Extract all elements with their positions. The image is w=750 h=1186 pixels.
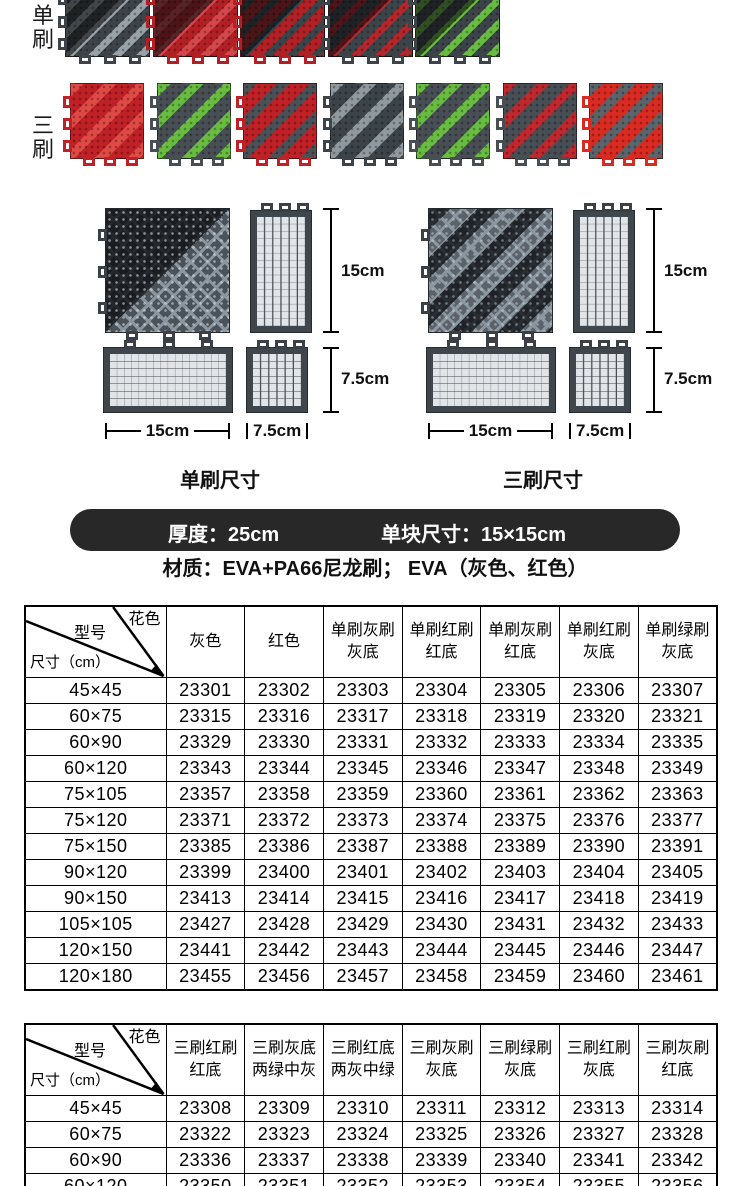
- product-code-cell: 23358: [245, 782, 324, 808]
- table-row: 60×7523322233232332423325233262332723328: [25, 1122, 717, 1148]
- connector-loop: [429, 55, 441, 64]
- connector-loop: [233, 38, 242, 50]
- connector-loop: [199, 331, 211, 340]
- product-code-cell: 23385: [166, 834, 245, 860]
- product-code-cell: 23429: [323, 912, 402, 938]
- column-header: 单刷灰刷灰底: [323, 606, 402, 678]
- product-tile-单刷绿刷灰底: [415, 0, 500, 57]
- product-code-cell: 23345: [323, 756, 402, 782]
- connector-loop: [602, 203, 614, 212]
- product-code-cell: 23350: [166, 1174, 245, 1186]
- connector-loop: [537, 157, 549, 166]
- product-code-cell: 23324: [323, 1122, 402, 1148]
- product-tile-单刷灰刷红底: [240, 0, 325, 57]
- connector-loop: [63, 140, 72, 152]
- table-row: 60×7523315233162331723318233192332023321: [25, 704, 717, 730]
- product-tile-三刷灰刷红底: [589, 83, 663, 159]
- edge-strip-horizontal: [426, 347, 556, 413]
- corner-label-model: 型号: [74, 1041, 106, 1063]
- product-code-cell: 23445: [481, 938, 560, 964]
- connector-loop: [342, 55, 354, 64]
- connector-loop: [342, 157, 354, 166]
- connector-loop: [472, 157, 484, 166]
- connector-loop: [256, 157, 268, 166]
- product-code-cell: 23311: [402, 1096, 481, 1122]
- product-tile-三刷红刷灰底: [503, 83, 577, 159]
- connector-loop: [623, 157, 635, 166]
- product-code-cell: 23346: [402, 756, 481, 782]
- connector-loop: [236, 140, 245, 152]
- product-tile-三刷灰底两绿中灰: [157, 83, 231, 159]
- product-code-cell: 23419: [638, 886, 717, 912]
- column-header: 三刷灰刷灰底: [402, 1024, 481, 1096]
- product-code-cell: 23418: [560, 886, 639, 912]
- table-row: 90×1202339923400234012340223403234042340…: [25, 860, 717, 886]
- table-row: 105×105234272342823429234302343123432234…: [25, 912, 717, 938]
- connector-loop: [104, 55, 116, 64]
- size-cell: 105×105: [25, 912, 166, 938]
- product-code-cell: 23347: [481, 756, 560, 782]
- product-code-cell: 23336: [166, 1148, 245, 1174]
- connector-loop: [146, 38, 155, 50]
- table-row: 75×1052335723358233592336023361233622336…: [25, 782, 717, 808]
- product-code-cell: 23333: [481, 730, 560, 756]
- triple-brush-size-caption: 三刷尺寸: [428, 464, 658, 493]
- edge-strip-vertical: [573, 210, 635, 333]
- product-tile-单刷灰刷灰底: [65, 0, 150, 57]
- product-code-cell: 23417: [481, 886, 560, 912]
- product-code-cell: 23414: [245, 886, 324, 912]
- product-code-cell: 23320: [560, 704, 639, 730]
- product-code-cell: 23405: [638, 860, 717, 886]
- spec-banner: 厚度：25cm 单块尺寸：15×15cm: [70, 509, 680, 551]
- connector-loop: [486, 331, 498, 340]
- connector-loop: [146, 0, 155, 5]
- connector-loop: [254, 55, 266, 64]
- connector-loop: [169, 157, 181, 166]
- connector-loop: [364, 157, 376, 166]
- connector-loop: [275, 340, 287, 349]
- connector-loop: [104, 157, 116, 166]
- column-header: 三刷灰底两绿中灰: [245, 1024, 324, 1096]
- product-code-cell: 23315: [166, 704, 245, 730]
- height-dimension-line: [323, 208, 339, 333]
- connector-loop: [429, 157, 441, 166]
- connector-loop: [236, 118, 245, 130]
- size-cell: 75×120: [25, 808, 166, 834]
- product-code-cell: 23318: [402, 704, 481, 730]
- single-brush-row-label: 单刷: [30, 4, 56, 52]
- product-code-cell: 23317: [323, 704, 402, 730]
- table-row: 75×1502338523386233872338823389233902339…: [25, 834, 717, 860]
- product-code-cell: 23357: [166, 782, 245, 808]
- width-dimension-line: 15cm: [105, 423, 230, 439]
- product-code-cell: 23306: [560, 678, 639, 704]
- triple-brush-row-label: 三刷: [30, 114, 56, 162]
- product-code-cell: 23305: [481, 678, 560, 704]
- connector-loop: [83, 157, 95, 166]
- connector-loop: [98, 302, 107, 314]
- table-row: 120×150234412344223443234442344523446234…: [25, 938, 717, 964]
- product-code-cell: 23402: [402, 860, 481, 886]
- unit-size-spec: 单块尺寸：15×15cm: [381, 518, 566, 547]
- product-code-cell: 23399: [166, 860, 245, 886]
- product-code-cell: 23372: [245, 808, 324, 834]
- product-code-cell: 23343: [166, 756, 245, 782]
- product-code-cell: 23459: [481, 964, 560, 991]
- product-tile-单刷红刷红底: [153, 0, 238, 57]
- product-code-cell: 23401: [323, 860, 402, 886]
- connector-loop: [201, 340, 213, 349]
- connector-loop: [582, 118, 591, 130]
- product-code-cell: 23325: [402, 1122, 481, 1148]
- connector-loop: [421, 302, 430, 314]
- connector-loop: [524, 340, 536, 349]
- connector-loop: [257, 340, 269, 349]
- connector-loop: [558, 157, 570, 166]
- product-code-cell: 23361: [481, 782, 560, 808]
- connector-loop: [321, 38, 330, 50]
- product-code-cell: 23373: [323, 808, 402, 834]
- connector-loop: [421, 266, 430, 278]
- connector-loop: [150, 96, 159, 108]
- table-row: 120×180234552345623457234582345923460234…: [25, 964, 717, 991]
- connector-loop: [454, 55, 466, 64]
- connector-loop: [191, 157, 203, 166]
- table-corner-cell: 花色 型号 尺寸（cm）: [25, 1024, 166, 1096]
- column-header: 红色: [245, 606, 324, 678]
- product-code-cell: 23330: [245, 730, 324, 756]
- size-cell: 60×75: [25, 1122, 166, 1148]
- connector-loop: [98, 266, 107, 278]
- product-spec-sheet: 单刷 三刷 15cm 7.5cm 15cm 7.5cm 单刷尺寸 15cm 7.…: [0, 0, 750, 1186]
- product-code-cell: 23328: [638, 1122, 717, 1148]
- connector-loop: [304, 55, 316, 64]
- size-cell: 60×75: [25, 704, 166, 730]
- product-code-cell: 23386: [245, 834, 324, 860]
- column-header: 单刷绿刷灰底: [638, 606, 717, 678]
- connector-loop: [79, 55, 91, 64]
- connector-loop: [279, 203, 291, 212]
- connector-loop: [323, 96, 332, 108]
- size-cell: 45×45: [25, 678, 166, 704]
- product-code-cell: 23415: [323, 886, 402, 912]
- product-code-cell: 23321: [638, 704, 717, 730]
- connector-loop: [496, 118, 505, 130]
- size-cell: 75×150: [25, 834, 166, 860]
- product-code-cell: 23341: [560, 1148, 639, 1174]
- product-code-cell: 23359: [323, 782, 402, 808]
- small-height-dimension-label: 7.5cm: [664, 369, 712, 389]
- connector-loop: [367, 55, 379, 64]
- connector-loop: [450, 157, 462, 166]
- connector-loop: [408, 16, 417, 28]
- product-code-cell: 23427: [166, 912, 245, 938]
- product-code-cell: 23447: [638, 938, 717, 964]
- table-row: 60×1202335023351233522335323354233552335…: [25, 1174, 717, 1186]
- size-cell: 60×120: [25, 756, 166, 782]
- connector-loop: [385, 157, 397, 166]
- connector-loop: [392, 55, 404, 64]
- product-code-cell: 23444: [402, 938, 481, 964]
- product-code-cell: 23339: [402, 1148, 481, 1174]
- connector-loop: [496, 96, 505, 108]
- size-cell: 60×90: [25, 730, 166, 756]
- connector-loop: [279, 55, 291, 64]
- product-tile-三刷绿刷灰底: [416, 83, 490, 159]
- connector-loop: [522, 331, 534, 340]
- product-code-cell: 23400: [245, 860, 324, 886]
- small-width-dimension-line: 7.5cm: [246, 423, 308, 439]
- connector-loop: [124, 340, 136, 349]
- product-code-cell: 23307: [638, 678, 717, 704]
- product-code-cell: 23360: [402, 782, 481, 808]
- small-width-dimension-line: 7.5cm: [569, 423, 631, 439]
- product-code-cell: 23441: [166, 938, 245, 964]
- connector-loop: [620, 203, 632, 212]
- product-code-cell: 23388: [402, 834, 481, 860]
- product-code-cell: 23446: [560, 938, 639, 964]
- width-dimension-line: 15cm: [428, 423, 553, 439]
- product-code-cell: 23431: [481, 912, 560, 938]
- single-brush-main-tile-image: [105, 208, 230, 333]
- edge-strip-horizontal: [103, 347, 233, 413]
- connector-loop: [98, 229, 107, 241]
- connector-loop: [129, 55, 141, 64]
- product-tile-三刷红刷红底: [70, 83, 144, 159]
- corner-label-model: 型号: [74, 623, 106, 645]
- product-code-cell: 23363: [638, 782, 717, 808]
- product-code-cell: 23356: [638, 1174, 717, 1186]
- product-code-cell: 23457: [323, 964, 402, 991]
- connector-loop: [447, 340, 459, 349]
- product-code-cell: 23404: [560, 860, 639, 886]
- small-height-dimension-label: 7.5cm: [341, 369, 389, 389]
- product-code-cell: 23344: [245, 756, 324, 782]
- corner-piece: [569, 347, 631, 413]
- connector-loop: [602, 157, 614, 166]
- corner-label-color: 花色: [128, 609, 160, 631]
- connector-loop: [321, 16, 330, 28]
- table-row: 45×4523308233092331023311233122331323314: [25, 1096, 717, 1122]
- column-header: 单刷红刷灰底: [560, 606, 639, 678]
- column-header: 灰色: [166, 606, 245, 678]
- table-row: 90×1502341323414234152341623417234182341…: [25, 886, 717, 912]
- connector-loop: [323, 140, 332, 152]
- product-code-cell: 23352: [323, 1174, 402, 1186]
- product-code-cell: 23326: [481, 1122, 560, 1148]
- table-row: 60×9023336233372333823339233402334123342: [25, 1148, 717, 1174]
- connector-loop: [192, 55, 204, 64]
- connector-loop: [126, 157, 138, 166]
- single-brush-size-caption: 单刷尺寸: [105, 464, 335, 493]
- table-row: 45×4523301233022330323304233052330623307: [25, 678, 717, 704]
- product-code-cell: 23303: [323, 678, 402, 704]
- connector-loop: [582, 96, 591, 108]
- column-header: 三刷红刷灰底: [560, 1024, 639, 1096]
- small-height-dimension-line: [323, 347, 339, 413]
- size-cell: 120×180: [25, 964, 166, 991]
- product-code-cell: 23377: [638, 808, 717, 834]
- product-code-cell: 23312: [481, 1096, 560, 1122]
- connector-loop: [421, 229, 430, 241]
- connector-loop: [63, 118, 72, 130]
- product-code-cell: 23309: [245, 1096, 324, 1122]
- product-code-cell: 23432: [560, 912, 639, 938]
- connector-loop: [233, 0, 242, 5]
- connector-loop: [58, 16, 67, 28]
- product-code-cell: 23389: [481, 834, 560, 860]
- material-spec: 材质：EVA+PA66尼龙刷； EVA（灰色、红色）: [0, 552, 750, 581]
- column-header: 三刷绿刷灰底: [481, 1024, 560, 1096]
- corner-label-size: 尺寸（cm）: [30, 652, 110, 674]
- product-code-cell: 23456: [245, 964, 324, 991]
- product-code-cell: 23443: [323, 938, 402, 964]
- product-code-cell: 23319: [481, 704, 560, 730]
- connector-loop: [645, 157, 657, 166]
- column-header: 单刷红刷红底: [402, 606, 481, 678]
- product-code-cell: 23342: [638, 1148, 717, 1174]
- size-cell: 90×120: [25, 860, 166, 886]
- product-code-cell: 23322: [166, 1122, 245, 1148]
- product-code-cell: 23331: [323, 730, 402, 756]
- column-header: 三刷红刷红底: [166, 1024, 245, 1096]
- small-height-dimension-line: [646, 347, 662, 413]
- connector-loop: [449, 331, 461, 340]
- connector-loop: [321, 0, 330, 5]
- connector-loop: [408, 38, 417, 50]
- connector-loop: [126, 331, 138, 340]
- product-code-cell: 23355: [560, 1174, 639, 1186]
- product-code-cell: 23340: [481, 1148, 560, 1174]
- product-code-cell: 23403: [481, 860, 560, 886]
- connector-loop: [582, 140, 591, 152]
- column-header: 三刷红底两灰中绿: [323, 1024, 402, 1096]
- triple-brush-main-tile-image: [428, 208, 553, 333]
- thickness-spec: 厚度：25cm: [168, 518, 279, 547]
- product-code-cell: 23375: [481, 808, 560, 834]
- connector-loop: [580, 340, 592, 349]
- connector-loop: [167, 55, 179, 64]
- connector-loop: [163, 340, 175, 349]
- connector-loop: [277, 157, 289, 166]
- size-cell: 120×150: [25, 938, 166, 964]
- size-cell: 90×150: [25, 886, 166, 912]
- triple-brush-model-table: 花色 型号 尺寸（cm） 三刷红刷红底三刷灰底两绿中灰三刷红底两灰中绿三刷灰刷灰…: [24, 1023, 718, 1186]
- connector-loop: [479, 55, 491, 64]
- product-code-cell: 23390: [560, 834, 639, 860]
- height-dimension-line: [646, 208, 662, 333]
- product-code-cell: 23334: [560, 730, 639, 756]
- size-cell: 60×90: [25, 1148, 166, 1174]
- product-code-cell: 23348: [560, 756, 639, 782]
- product-code-cell: 23455: [166, 964, 245, 991]
- product-code-cell: 23413: [166, 886, 245, 912]
- connector-loop: [598, 340, 610, 349]
- table-row: 60×1202334323344233452334623347233482334…: [25, 756, 717, 782]
- product-code-cell: 23313: [560, 1096, 639, 1122]
- size-cell: 60×120: [25, 1174, 166, 1186]
- corner-label-color: 花色: [128, 1027, 160, 1049]
- product-tile-单刷红刷灰底: [328, 0, 413, 57]
- product-code-cell: 23316: [245, 704, 324, 730]
- connector-loop: [486, 340, 498, 349]
- table-row: 60×9023329233302333123332233332333423335: [25, 730, 717, 756]
- connector-loop: [584, 203, 596, 212]
- product-code-cell: 23308: [166, 1096, 245, 1122]
- height-dimension-label: 15cm: [341, 261, 384, 281]
- product-code-cell: 23335: [638, 730, 717, 756]
- connector-loop: [163, 331, 175, 340]
- product-tile-三刷红底两灰中绿: [243, 83, 317, 159]
- connector-loop: [515, 157, 527, 166]
- product-code-cell: 23304: [402, 678, 481, 704]
- size-cell: 75×105: [25, 782, 166, 808]
- size-cell: 45×45: [25, 1096, 166, 1122]
- product-code-cell: 23376: [560, 808, 639, 834]
- edge-strip-vertical: [250, 210, 312, 333]
- connector-loop: [150, 118, 159, 130]
- product-code-cell: 23310: [323, 1096, 402, 1122]
- product-code-cell: 23338: [323, 1148, 402, 1174]
- product-code-cell: 23461: [638, 964, 717, 991]
- single-brush-model-table: 花色 型号 尺寸（cm） 灰色红色单刷灰刷灰底单刷红刷红底单刷灰刷红底单刷红刷灰…: [24, 605, 718, 991]
- height-dimension-label: 15cm: [664, 261, 707, 281]
- product-code-cell: 23314: [638, 1096, 717, 1122]
- connector-loop: [236, 96, 245, 108]
- connector-loop: [233, 16, 242, 28]
- product-code-cell: 23460: [560, 964, 639, 991]
- connector-loop: [496, 140, 505, 152]
- connector-loop: [409, 118, 418, 130]
- connector-loop: [323, 118, 332, 130]
- connector-loop: [261, 203, 273, 212]
- connector-loop: [212, 157, 224, 166]
- table-row: 75×1202337123372233732337423375233762337…: [25, 808, 717, 834]
- product-code-cell: 23442: [245, 938, 324, 964]
- connector-loop: [293, 340, 305, 349]
- connector-loop: [146, 16, 155, 28]
- product-code-cell: 23337: [245, 1148, 324, 1174]
- connector-loop: [63, 96, 72, 108]
- product-code-cell: 23430: [402, 912, 481, 938]
- connector-loop: [299, 157, 311, 166]
- corner-piece: [246, 347, 308, 413]
- product-code-cell: 23302: [245, 678, 324, 704]
- table-corner-cell: 花色 型号 尺寸（cm）: [25, 606, 166, 678]
- product-code-cell: 23387: [323, 834, 402, 860]
- product-code-cell: 23433: [638, 912, 717, 938]
- connector-loop: [217, 55, 229, 64]
- product-code-cell: 23416: [402, 886, 481, 912]
- connector-loop: [409, 140, 418, 152]
- product-code-cell: 23362: [560, 782, 639, 808]
- connector-loop: [58, 38, 67, 50]
- product-code-cell: 23371: [166, 808, 245, 834]
- connector-loop: [150, 140, 159, 152]
- product-code-cell: 23428: [245, 912, 324, 938]
- product-code-cell: 23301: [166, 678, 245, 704]
- product-code-cell: 23391: [638, 834, 717, 860]
- product-code-cell: 23351: [245, 1174, 324, 1186]
- product-tile-三刷灰刷灰底: [330, 83, 404, 159]
- connector-loop: [616, 340, 628, 349]
- connector-loop: [408, 0, 417, 5]
- product-code-cell: 23323: [245, 1122, 324, 1148]
- connector-loop: [58, 0, 67, 5]
- product-code-cell: 23329: [166, 730, 245, 756]
- product-code-cell: 23349: [638, 756, 717, 782]
